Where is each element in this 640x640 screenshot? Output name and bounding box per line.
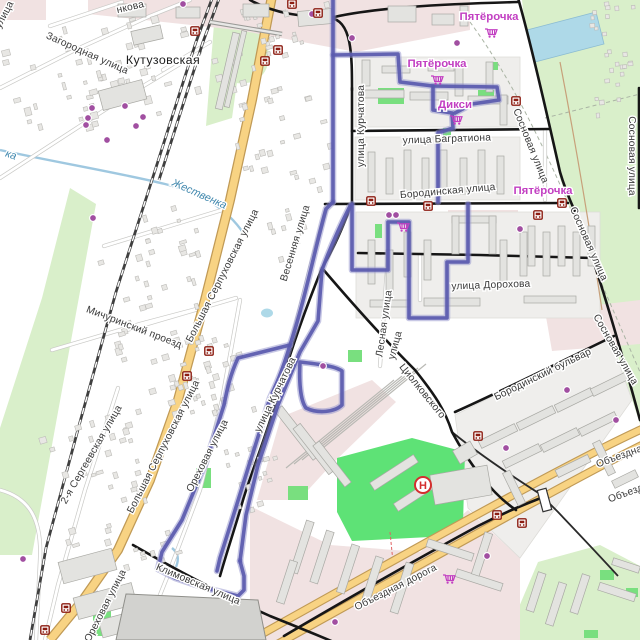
shop-label[interactable]: Пятёрочка xyxy=(459,11,519,23)
street-label: Загородная улица xyxy=(44,31,130,77)
bus-stop-icon[interactable] xyxy=(205,347,213,355)
map-canvas[interactable]: HнковаулицаЗагородная улицаКутузовскаяЖе… xyxy=(0,0,640,640)
bus-stop-icon[interactable] xyxy=(424,202,432,210)
poi-dot[interactable] xyxy=(180,1,187,8)
shop-label[interactable]: Пятёрочка xyxy=(407,58,467,70)
poi-dot[interactable] xyxy=(393,212,400,219)
poi-dot[interactable] xyxy=(564,387,571,394)
poi-dot[interactable] xyxy=(484,553,491,560)
poi-dot[interactable] xyxy=(613,417,620,424)
bus-stop-icon[interactable] xyxy=(493,511,501,519)
poi-dot[interactable] xyxy=(454,40,461,47)
poi-dot[interactable] xyxy=(89,105,96,112)
bus-stop-icon[interactable] xyxy=(512,97,520,105)
poi-dot[interactable] xyxy=(90,215,97,222)
poi-dot[interactable] xyxy=(517,226,524,233)
poi-dot[interactable] xyxy=(349,35,356,42)
street-label: 2-я Сергеевская улица xyxy=(59,403,125,506)
poi-dot[interactable] xyxy=(122,103,129,110)
helipad-icon[interactable]: H xyxy=(415,477,431,493)
poi-dot[interactable] xyxy=(133,123,140,130)
water-label: ка xyxy=(4,148,18,163)
poi-dot[interactable] xyxy=(503,445,510,452)
street-label: улица Курчатова xyxy=(356,85,367,167)
shop-cart-icon[interactable] xyxy=(485,29,497,38)
bus-stop-icon[interactable] xyxy=(183,372,191,380)
street-label: Сосновая улица xyxy=(626,116,637,196)
svg-text:H: H xyxy=(419,480,427,492)
shop-label[interactable]: Дикси xyxy=(438,99,472,111)
map-viewport[interactable]: HнковаулицаЗагородная улицаКутузовскаяЖе… xyxy=(0,0,640,640)
bus-stop-icon[interactable] xyxy=(367,197,375,205)
station-label: Кутузовская xyxy=(126,53,200,67)
shop-label[interactable]: Пятёрочка xyxy=(513,185,573,197)
bus-stop-icon[interactable] xyxy=(62,604,70,612)
poi-dot[interactable] xyxy=(20,556,27,563)
poi-dot[interactable] xyxy=(386,212,393,219)
bus-stop-icon[interactable] xyxy=(558,199,566,207)
bus-stop-icon[interactable] xyxy=(534,211,542,219)
poi-dot[interactable] xyxy=(320,363,327,370)
bus-stop-icon[interactable] xyxy=(314,9,322,17)
street-label: Циолковского xyxy=(397,362,448,421)
water-label: Жественка xyxy=(169,176,228,211)
poi-dot[interactable] xyxy=(332,619,339,626)
poi-dot[interactable] xyxy=(104,137,111,144)
bus-stop-icon[interactable] xyxy=(41,626,49,634)
bus-stop-icon[interactable] xyxy=(274,46,282,54)
bus-stop-icon[interactable] xyxy=(474,432,482,440)
street-label: Мичуринский проезд xyxy=(85,304,184,351)
bus-stop-icon[interactable] xyxy=(191,27,199,35)
bus-stop-icon[interactable] xyxy=(261,57,269,65)
bus-stop-icon[interactable] xyxy=(288,0,296,8)
bus-stop-icon[interactable] xyxy=(518,519,526,527)
poi-dot[interactable] xyxy=(83,122,90,129)
poi-dot[interactable] xyxy=(85,115,92,122)
poi-dot[interactable] xyxy=(140,114,147,121)
